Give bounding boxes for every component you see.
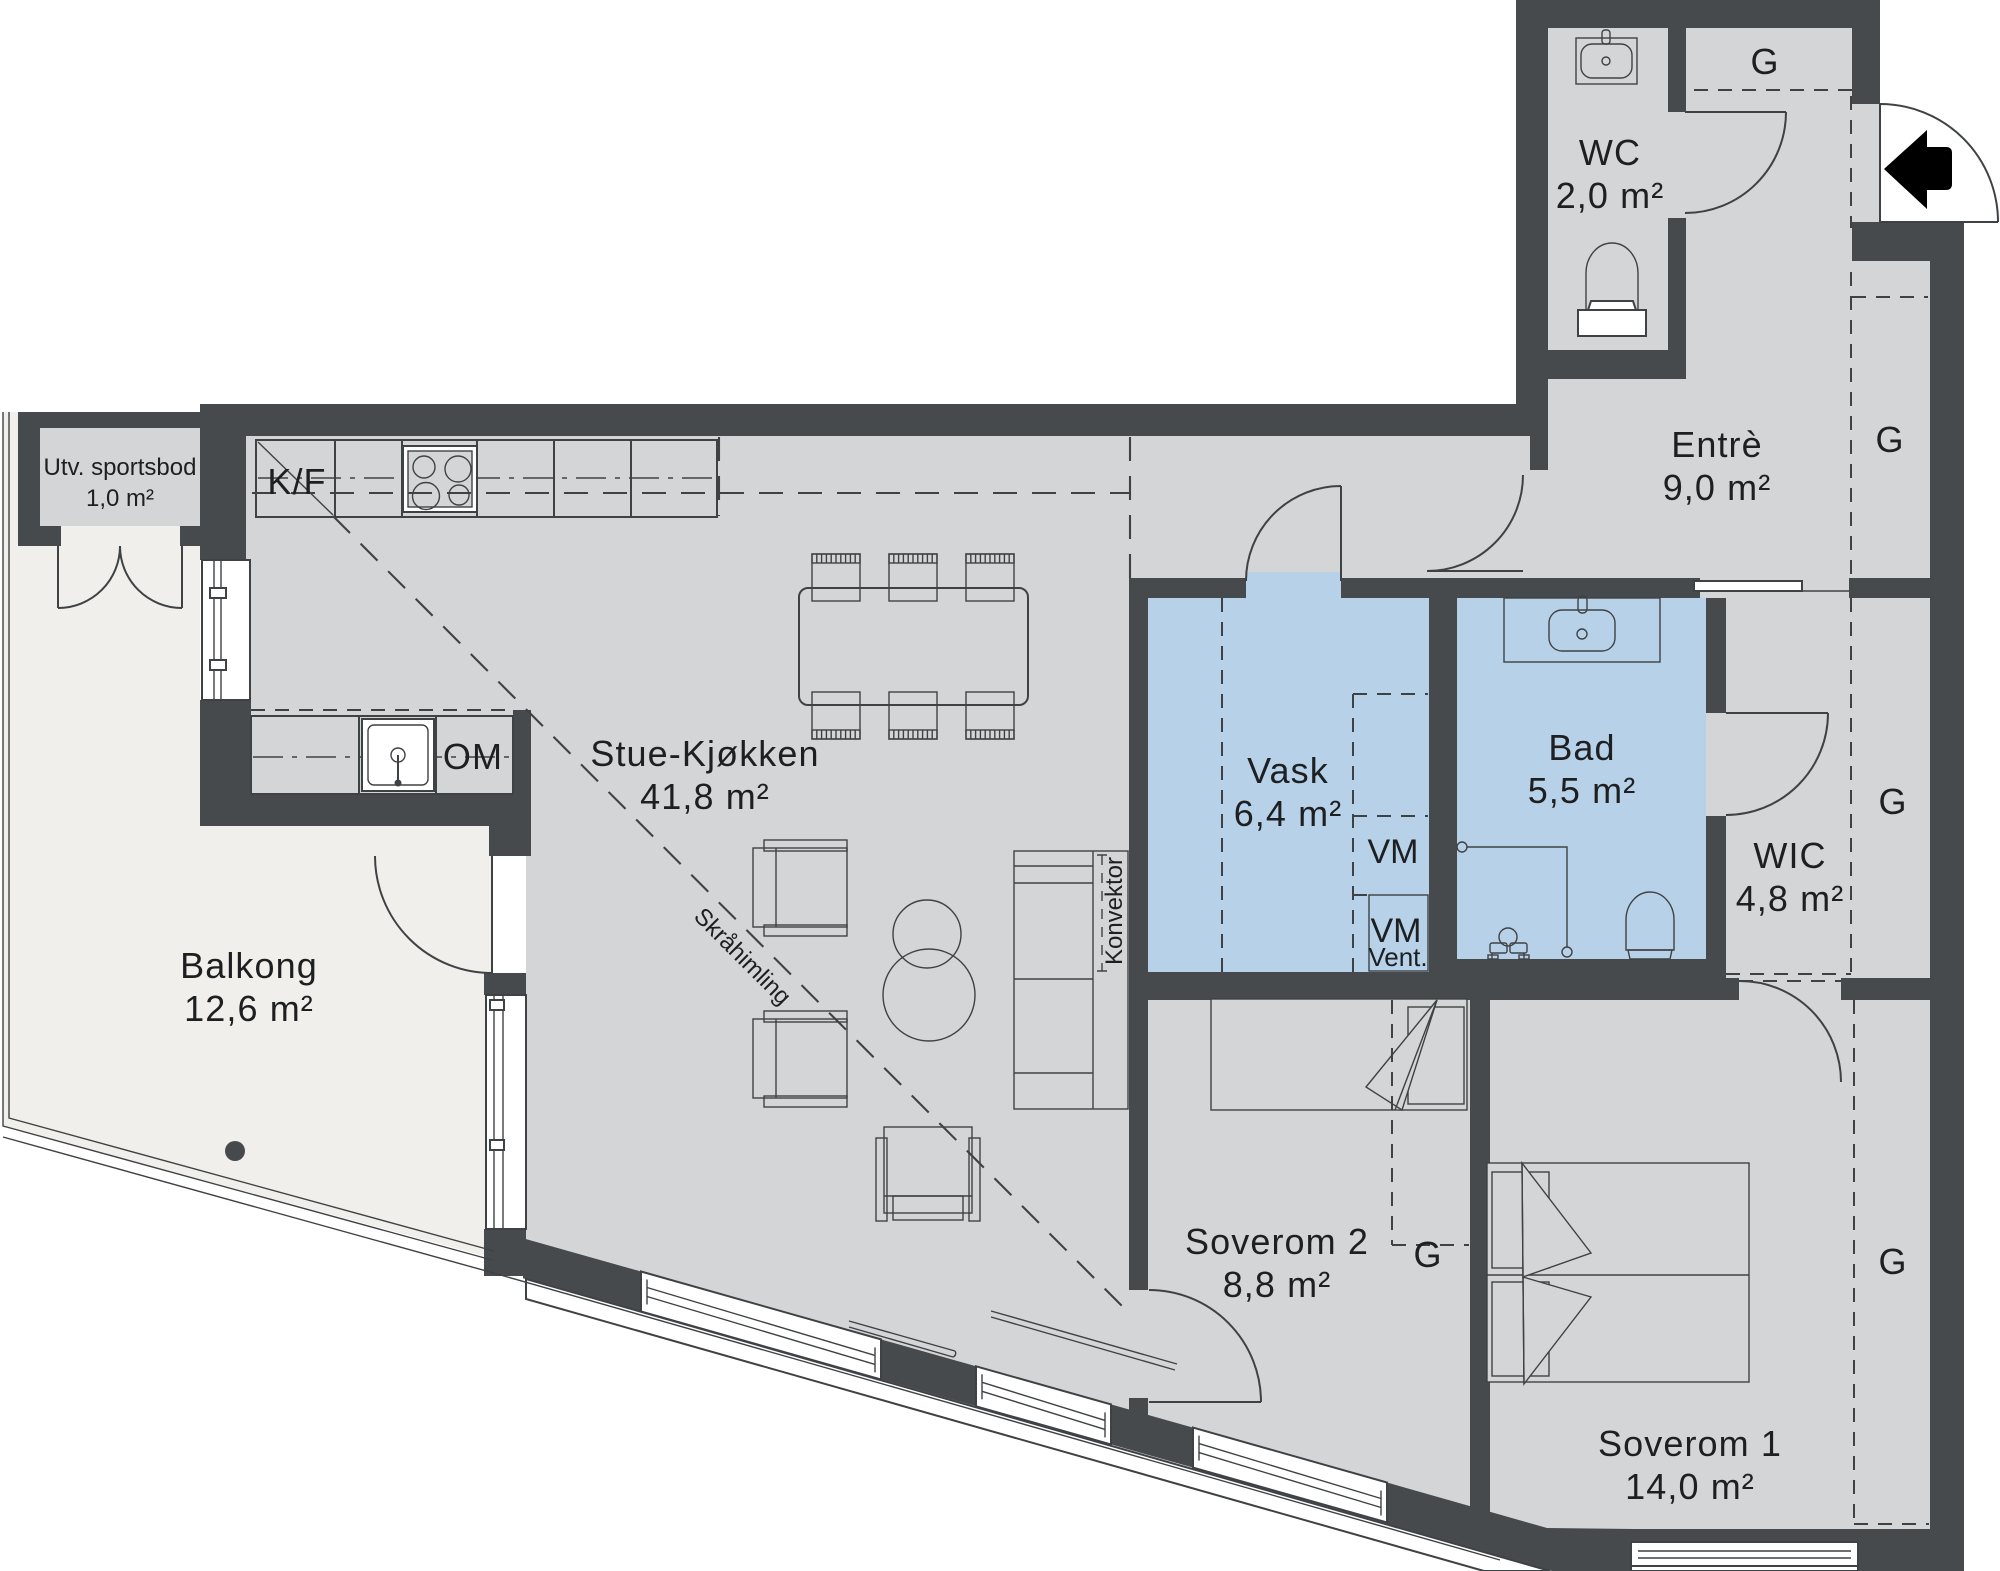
svg-text:Stue-Kjøkken: Stue-Kjøkken xyxy=(590,733,819,774)
svg-text:G: G xyxy=(1878,781,1907,822)
svg-text:G: G xyxy=(1878,1241,1907,1282)
svg-text:G: G xyxy=(1875,419,1904,460)
svg-text:9,0 m²: 9,0 m² xyxy=(1663,467,1772,508)
svg-text:Vask: Vask xyxy=(1247,750,1329,791)
svg-text:6,4 m²: 6,4 m² xyxy=(1234,793,1343,834)
svg-text:Balkong: Balkong xyxy=(180,945,318,986)
svg-text:4,8 m²: 4,8 m² xyxy=(1736,878,1845,919)
svg-text:41,8 m²: 41,8 m² xyxy=(640,776,770,817)
svg-text:Entrè: Entrè xyxy=(1671,424,1763,465)
svg-text:Soverom 1: Soverom 1 xyxy=(1598,1423,1782,1464)
svg-text:VM: VM xyxy=(1368,833,1419,871)
svg-text:WC: WC xyxy=(1579,132,1641,173)
svg-text:WIC: WIC xyxy=(1753,835,1826,876)
svg-text:Vent.: Vent. xyxy=(1368,942,1427,972)
svg-text:2,0 m²: 2,0 m² xyxy=(1556,175,1665,216)
svg-text:K/F: K/F xyxy=(267,461,326,502)
svg-text:1,0 m²: 1,0 m² xyxy=(86,485,154,512)
svg-text:Konvektor: Konvektor xyxy=(1101,857,1128,965)
svg-text:OM: OM xyxy=(443,736,503,777)
svg-text:G: G xyxy=(1750,41,1779,82)
svg-text:Bad: Bad xyxy=(1548,727,1615,768)
svg-text:Soverom 2: Soverom 2 xyxy=(1185,1221,1369,1262)
svg-text:14,0 m²: 14,0 m² xyxy=(1625,1466,1755,1507)
svg-text:G: G xyxy=(1413,1234,1442,1275)
svg-text:5,5 m²: 5,5 m² xyxy=(1528,770,1637,811)
svg-text:12,6 m²: 12,6 m² xyxy=(184,988,314,1029)
svg-text:8,8 m²: 8,8 m² xyxy=(1223,1264,1332,1305)
svg-text:Utv. sportsbod: Utv. sportsbod xyxy=(44,454,197,481)
